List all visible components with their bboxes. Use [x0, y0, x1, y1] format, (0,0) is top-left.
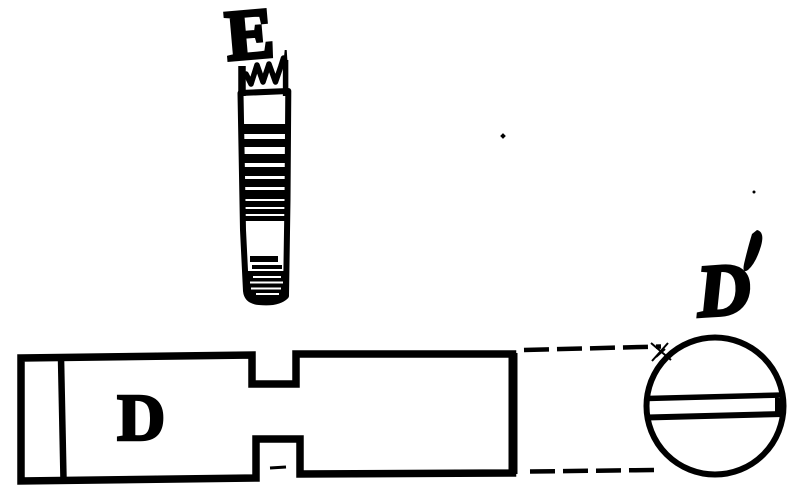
- svg-text:D: D: [117, 381, 165, 455]
- svg-text:D: D: [693, 248, 753, 334]
